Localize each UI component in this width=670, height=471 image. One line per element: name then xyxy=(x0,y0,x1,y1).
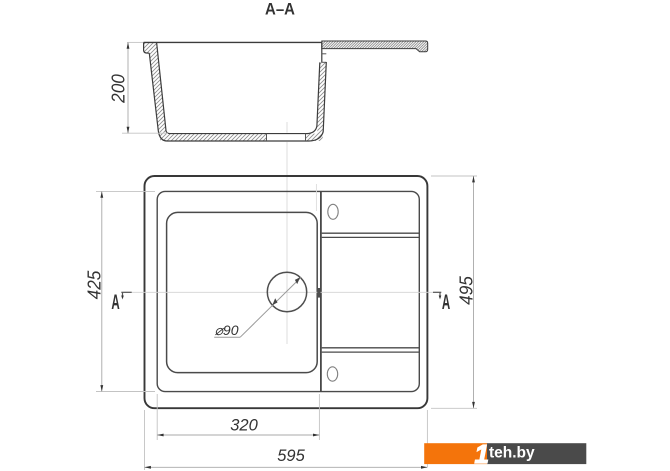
svg-text:A–A: A–A xyxy=(265,1,295,19)
svg-text:A: A xyxy=(442,290,450,314)
svg-text:200: 200 xyxy=(108,74,129,104)
svg-text:A: A xyxy=(111,290,119,314)
svg-text:425: 425 xyxy=(84,271,105,300)
svg-text:teh.by: teh.by xyxy=(489,445,535,462)
svg-text:1: 1 xyxy=(475,439,489,469)
svg-text:⌀90: ⌀90 xyxy=(214,322,238,338)
svg-text:495: 495 xyxy=(456,276,477,305)
svg-text:320: 320 xyxy=(230,417,258,435)
svg-text:595: 595 xyxy=(277,447,305,465)
